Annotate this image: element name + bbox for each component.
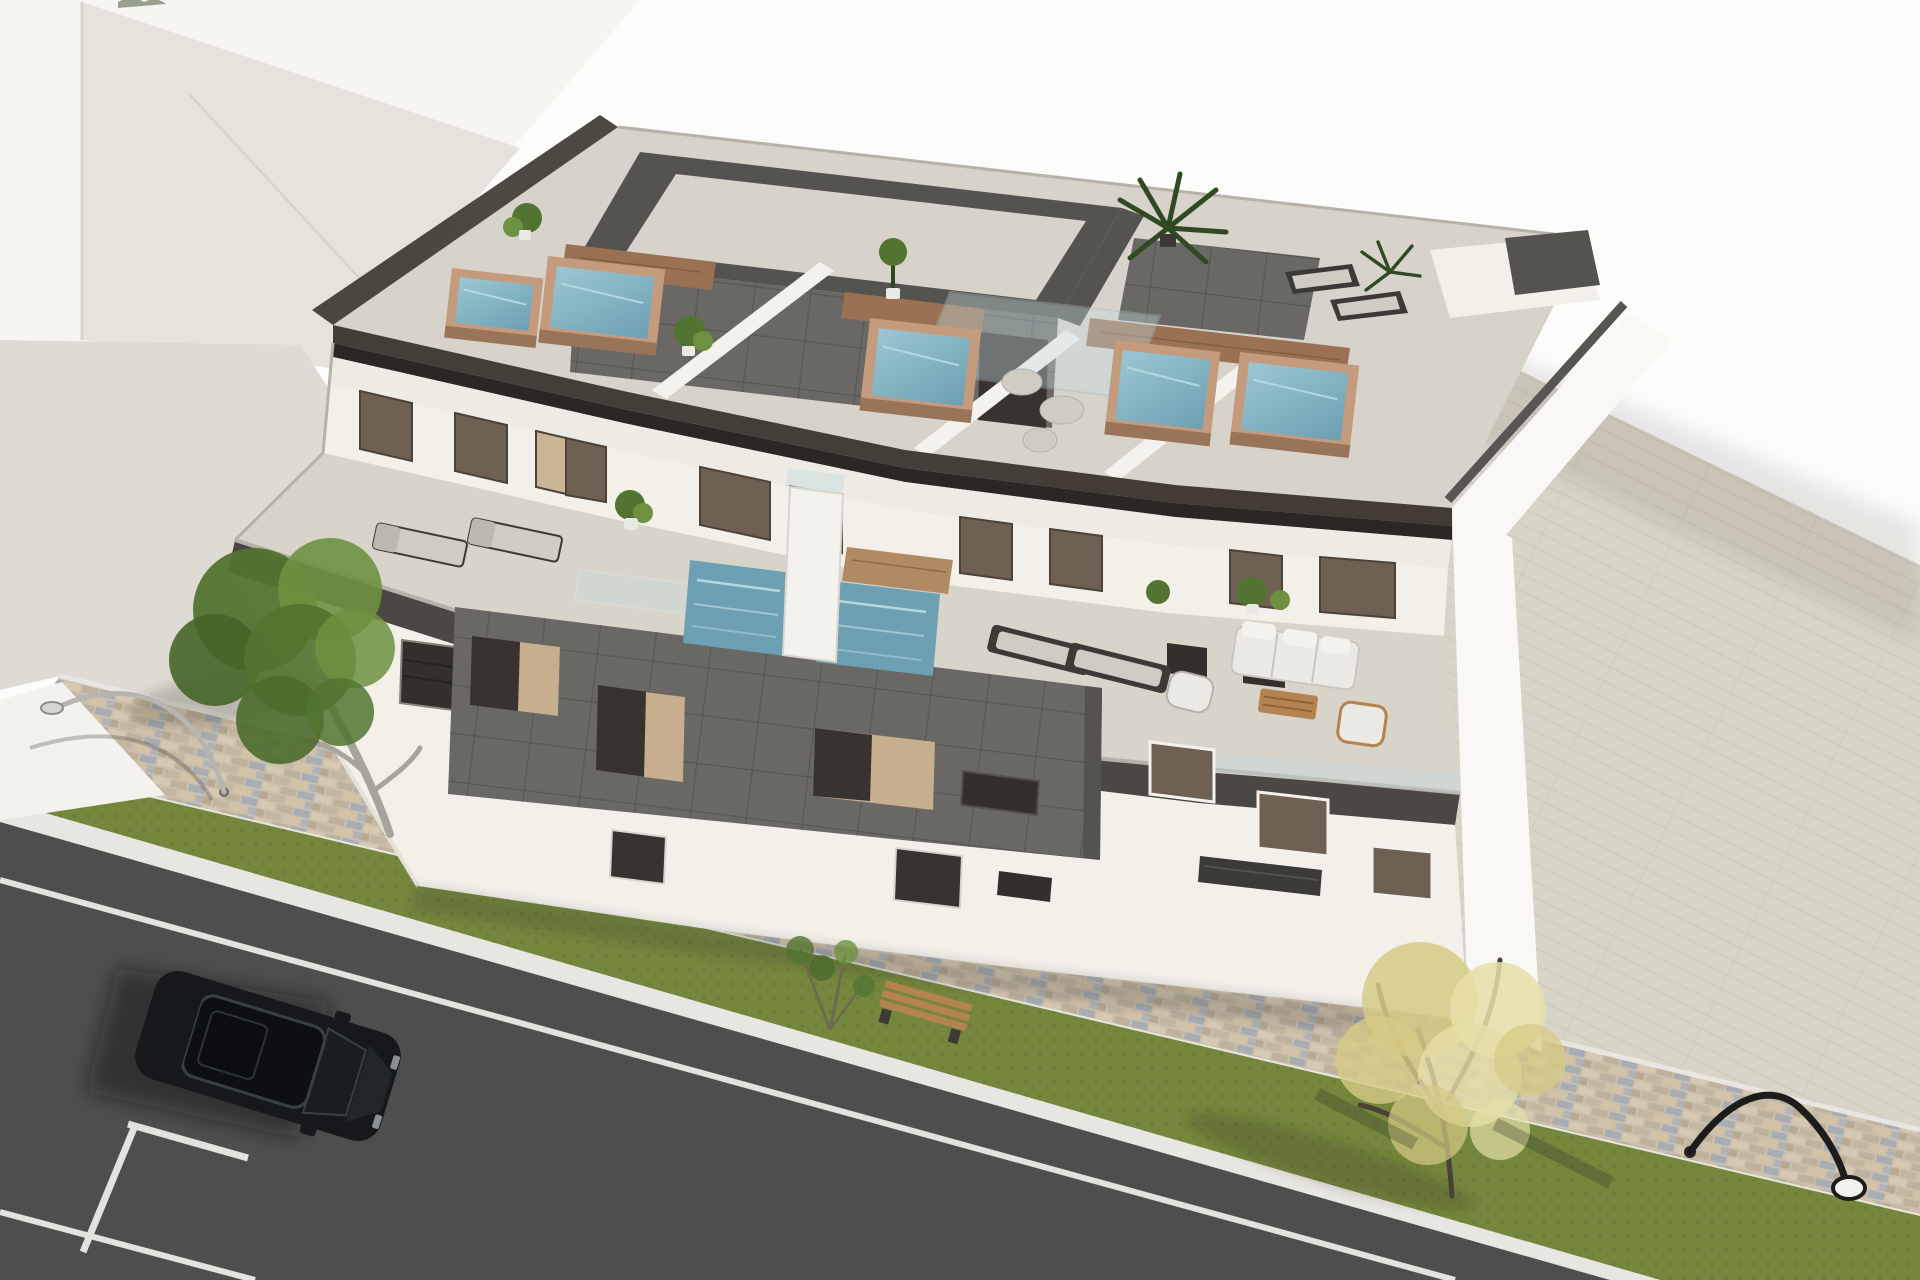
rooftop-jacuzzi-3 bbox=[859, 318, 981, 423]
pool-divider-wall bbox=[783, 487, 843, 662]
lamp-head bbox=[1833, 1177, 1865, 1199]
entrance-door-1 bbox=[610, 830, 666, 884]
lower-window-1 bbox=[1150, 742, 1214, 802]
rooftop-jacuzzi-2 bbox=[538, 256, 665, 356]
recessed-balcony-2 bbox=[596, 685, 685, 782]
recessed-balcony-3 bbox=[813, 728, 935, 810]
apartment-building bbox=[228, 115, 1672, 1052]
terrace-armchair-2 bbox=[1336, 701, 1387, 747]
rooftop-jacuzzi-5 bbox=[1229, 352, 1359, 458]
architectural-render-scene bbox=[0, 0, 1920, 1280]
entrance-door-2 bbox=[894, 848, 962, 908]
tile-box-edge bbox=[1083, 686, 1102, 860]
plunge-pool-left bbox=[683, 560, 793, 656]
rooftop-jacuzzi-4 bbox=[1104, 340, 1220, 446]
lower-window-3 bbox=[1372, 846, 1432, 900]
rooftop-jacuzzi-1 bbox=[444, 268, 543, 348]
terrace-plant-3 bbox=[1146, 580, 1170, 604]
recessed-balcony-1 bbox=[470, 636, 560, 716]
render-canvas bbox=[0, 0, 1920, 1280]
lamp-head bbox=[41, 702, 63, 714]
rear-dark-volume bbox=[1505, 230, 1600, 295]
lower-window-2 bbox=[1258, 792, 1328, 856]
